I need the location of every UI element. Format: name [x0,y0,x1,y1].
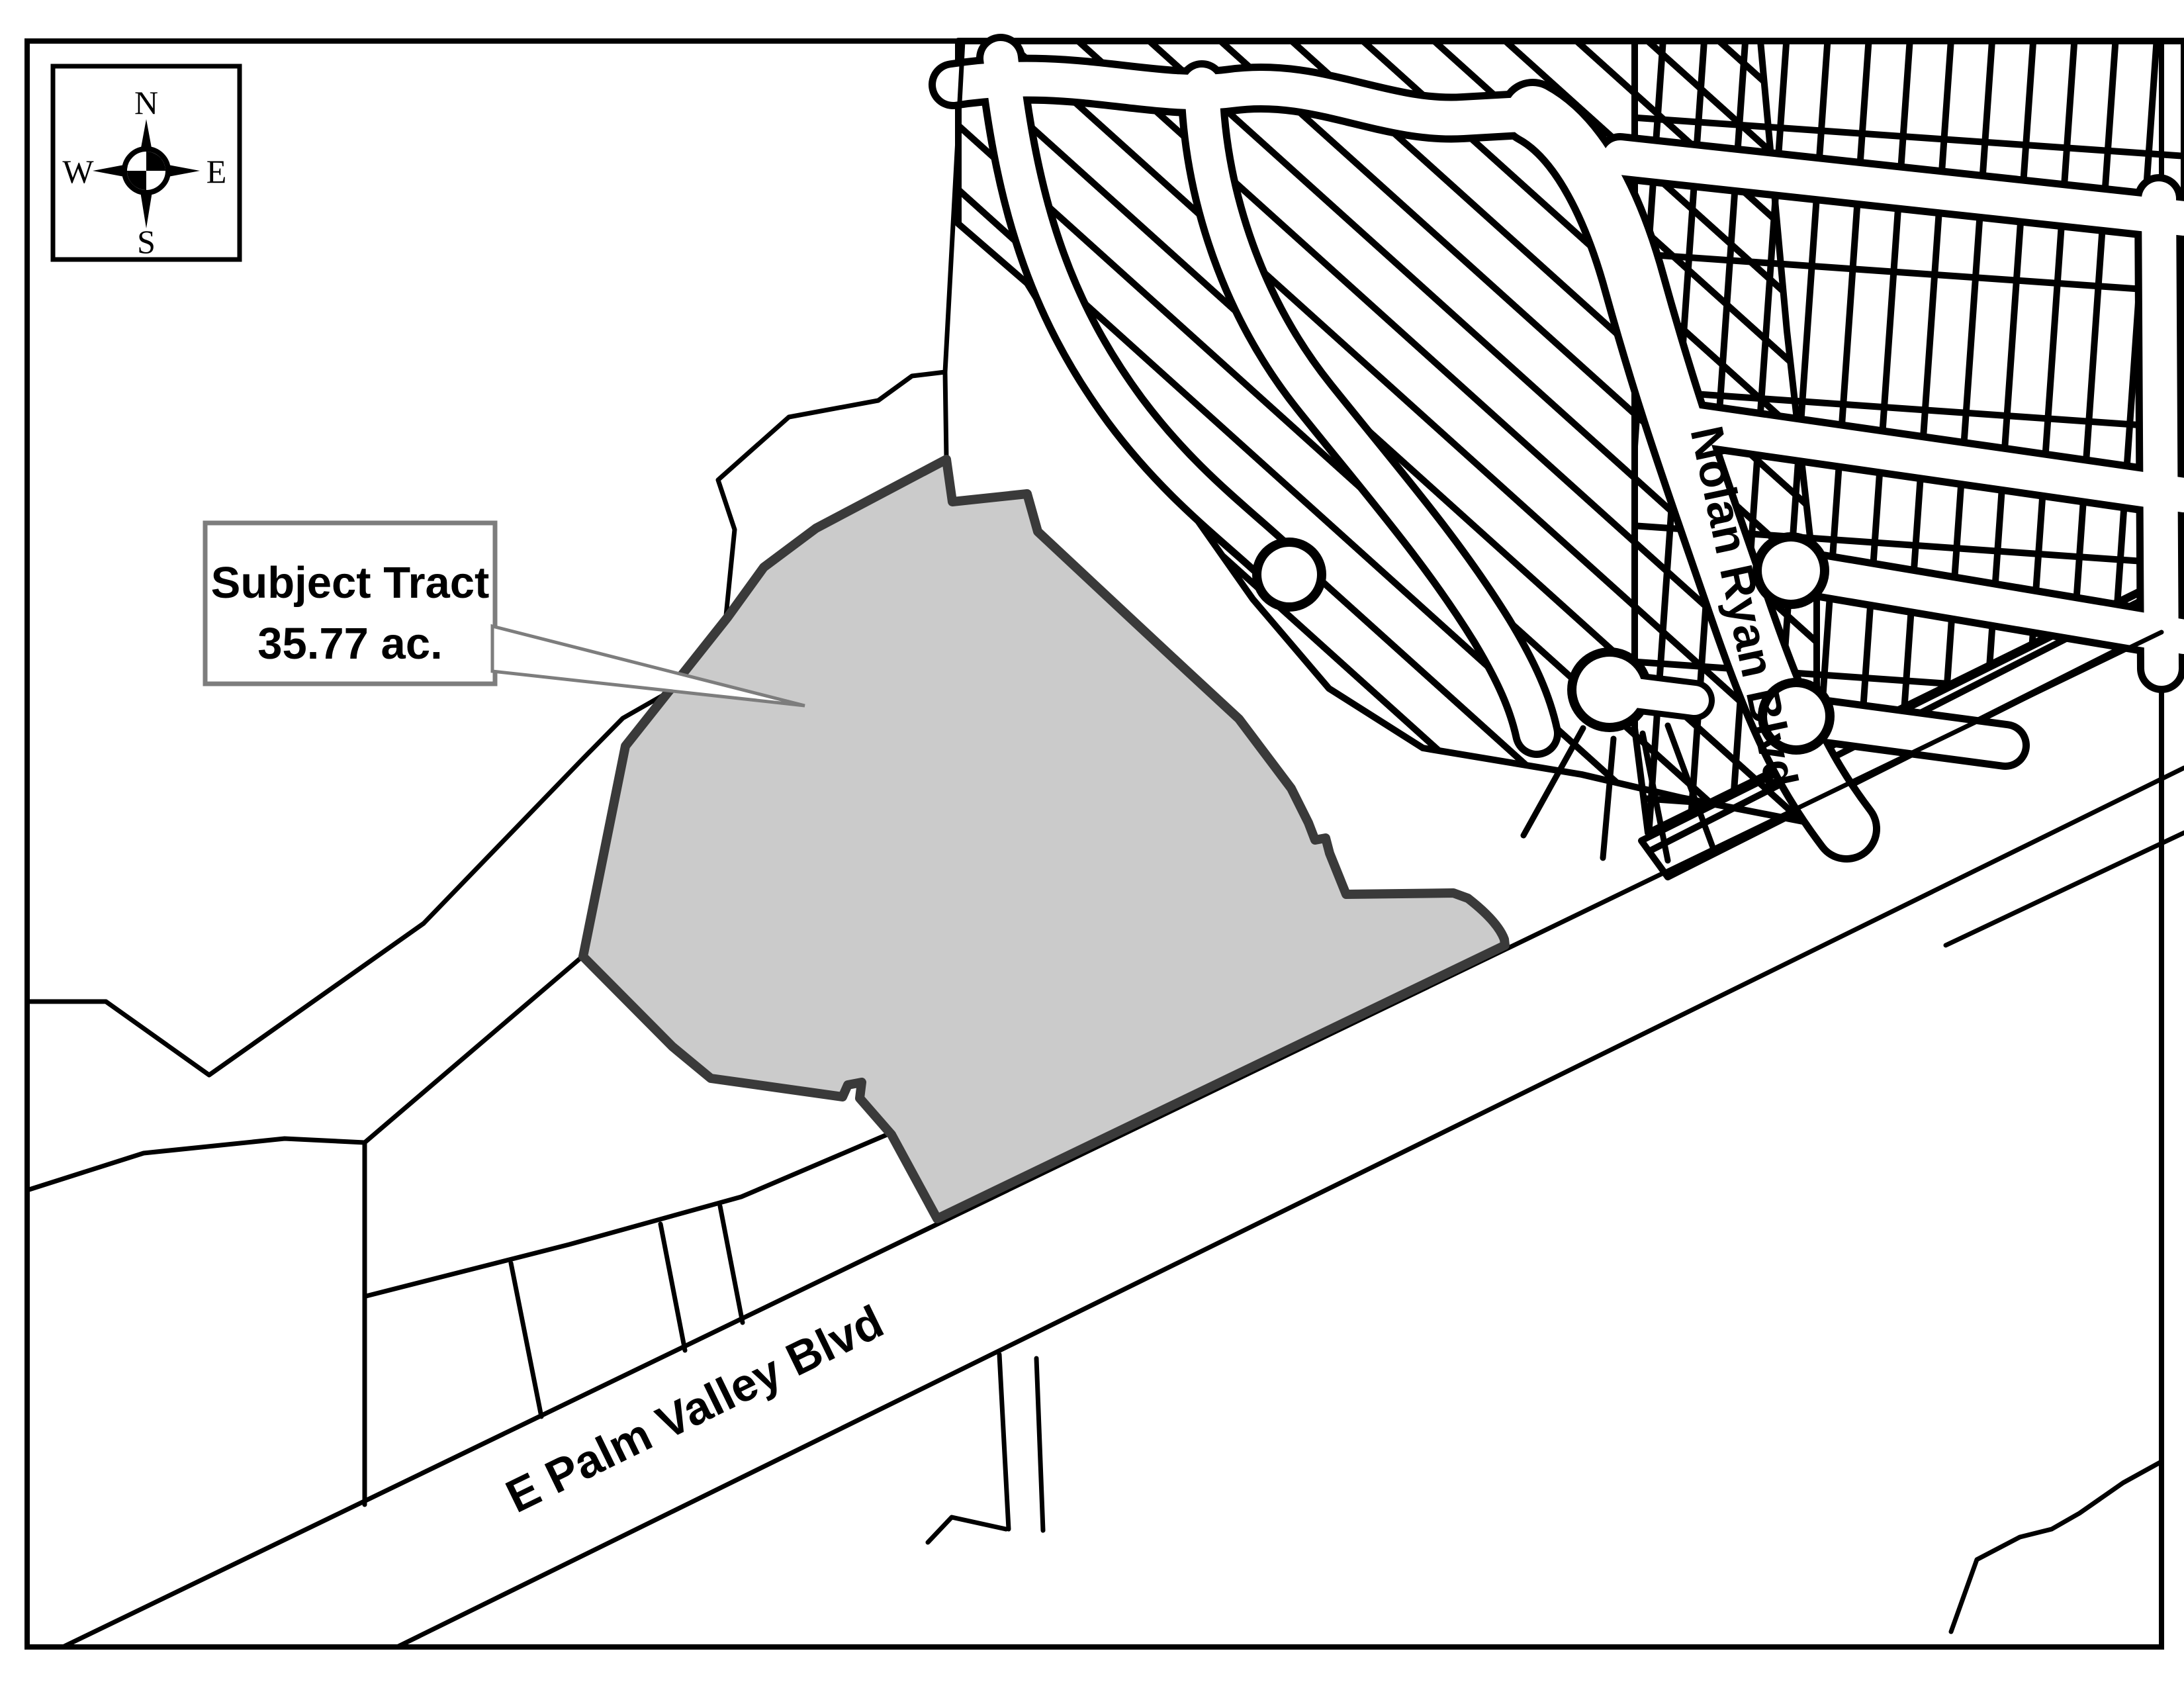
plat-map-canvas: Nolan Ryan Blvd E Palm Valley Blvd Subje… [0,0,2184,1688]
compass-east-label: E [206,153,227,190]
compass-west-label: W [62,153,94,190]
callout-title: Subject Tract [211,558,490,608]
plat-map: Nolan Ryan Blvd E Palm Valley Blvd Subje… [0,0,2184,1688]
compass-north-label: N [134,84,158,121]
compass-south-label: S [137,223,156,260]
callout-acreage: 35.77 ac. [257,619,442,669]
compass-rose: N S W E [53,66,240,260]
